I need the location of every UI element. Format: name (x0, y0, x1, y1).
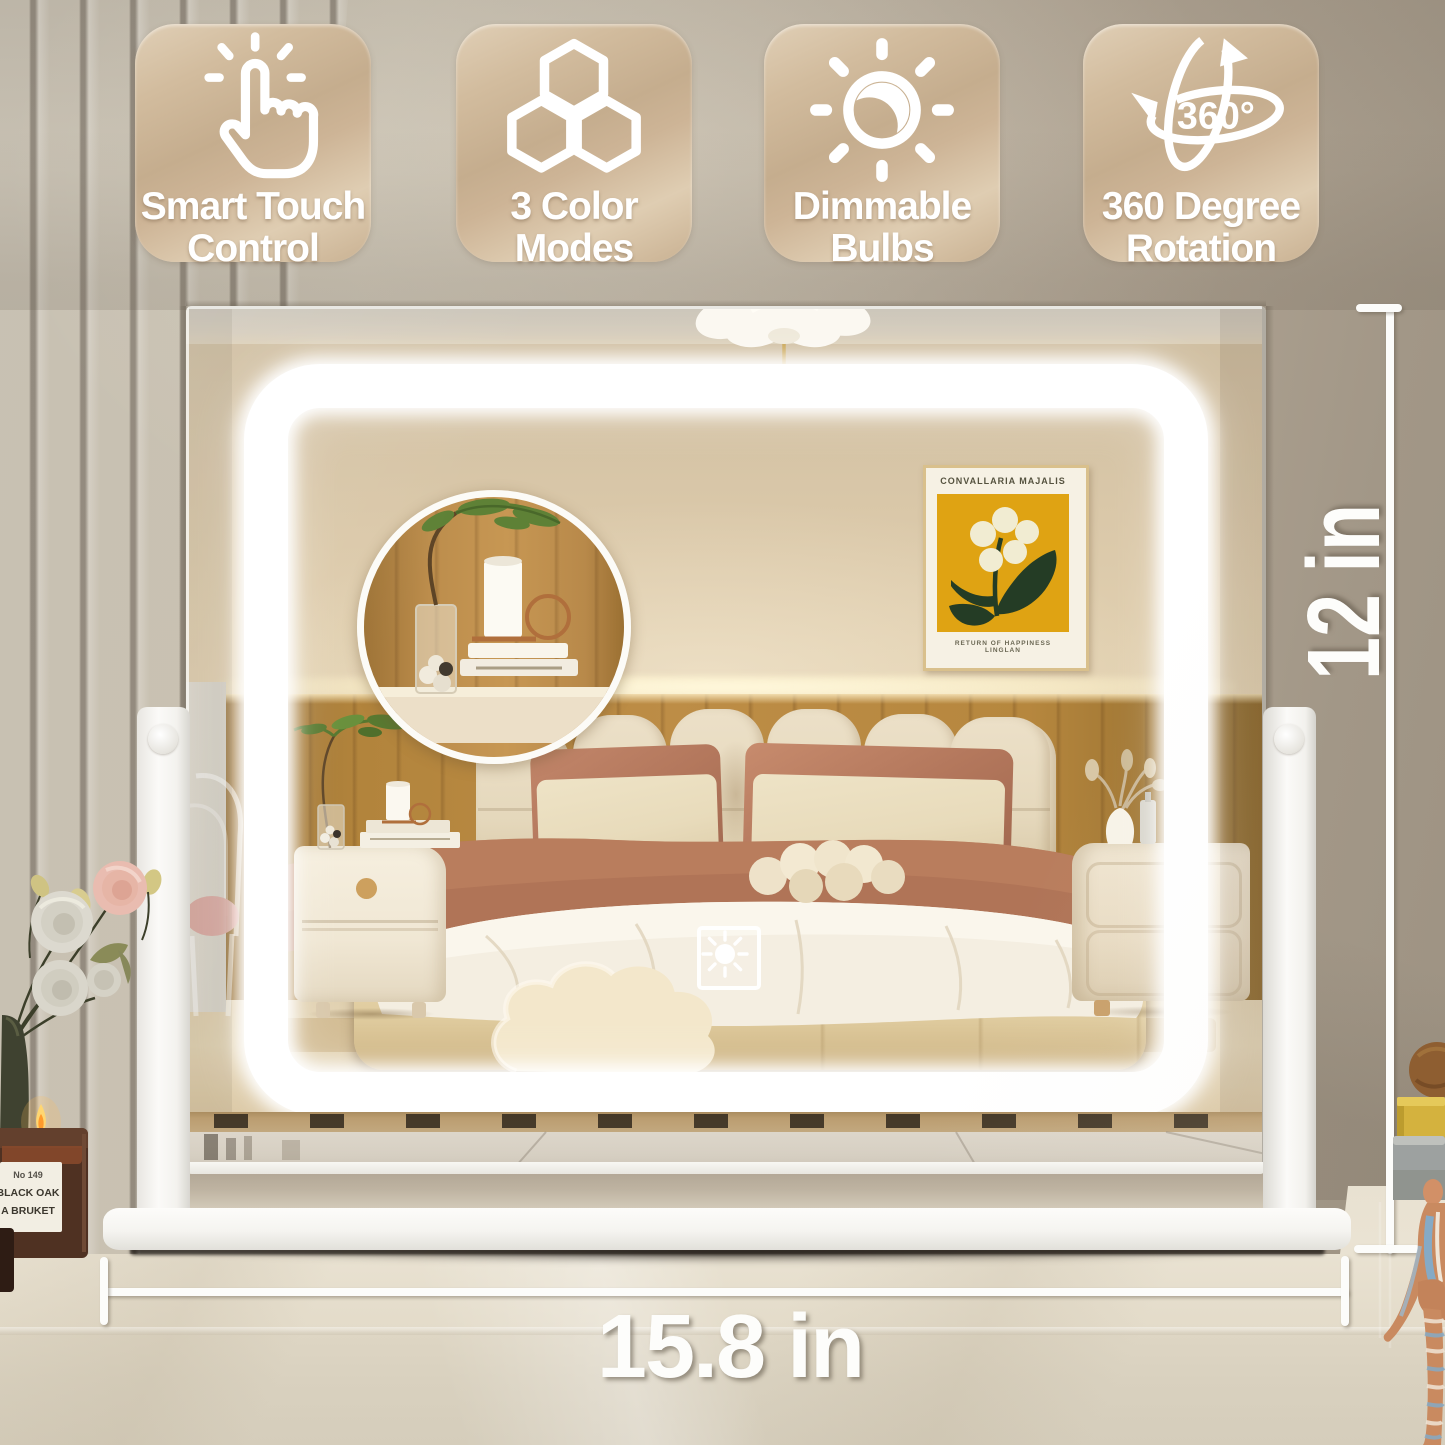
svg-text:12 in: 12 in (1286, 504, 1401, 680)
svg-text:No 149: No 149 (13, 1170, 43, 1180)
svg-text:BLACK OAK: BLACK OAK (0, 1187, 60, 1199)
svg-text:A BRUKET: A BRUKET (1, 1205, 55, 1217)
